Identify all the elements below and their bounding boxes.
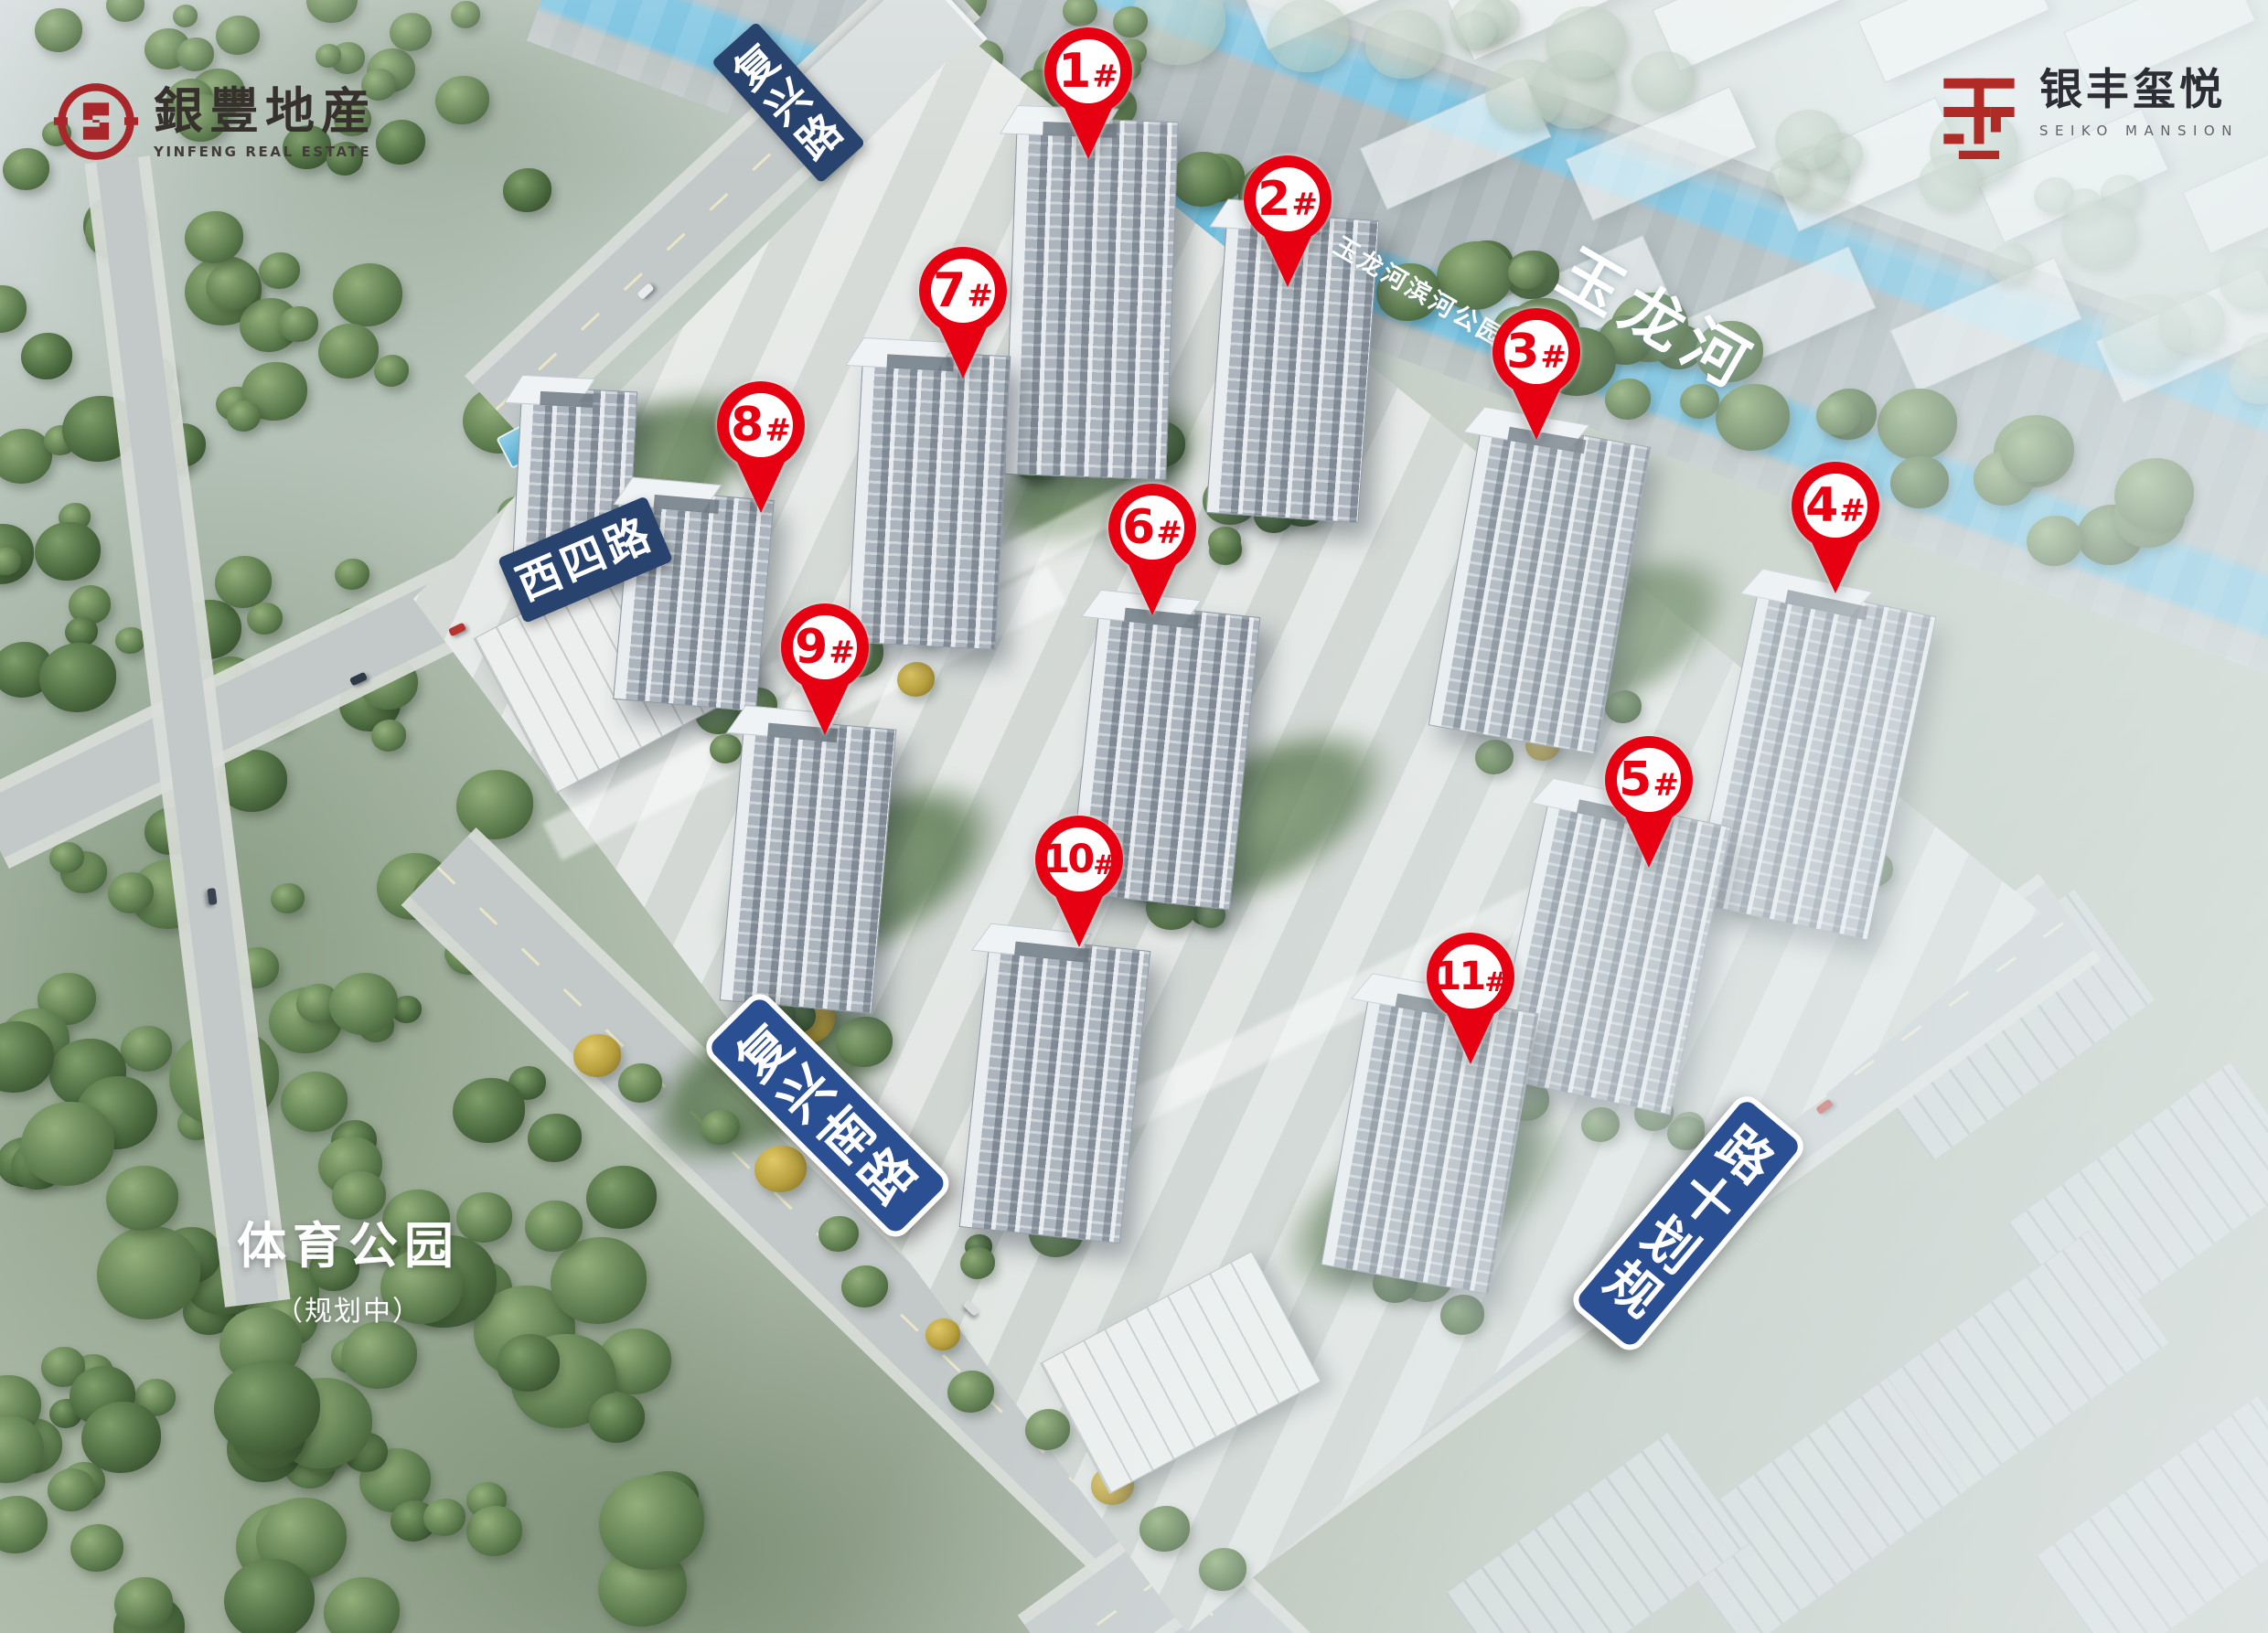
building-10#: [959, 934, 1151, 1244]
building-7#: [848, 348, 1011, 650]
marker-number: 9: [795, 624, 828, 671]
tree: [754, 1146, 807, 1192]
tree: [115, 627, 145, 654]
tree: [1546, 6, 1626, 79]
tree: [185, 211, 243, 263]
building-marker-6#: 6#: [1108, 484, 1196, 623]
tree: [48, 1468, 95, 1511]
tree: [1199, 1548, 1246, 1591]
marker-head: 5#: [1605, 736, 1693, 824]
marker-number: 4: [1805, 482, 1838, 529]
tree: [947, 1371, 994, 1413]
building-1#: [1004, 116, 1179, 480]
tree: [1878, 389, 1956, 460]
building-marker-5#: 5#: [1605, 736, 1693, 875]
tree: [215, 556, 273, 607]
tree: [453, 1078, 524, 1143]
tree: [108, 872, 154, 913]
seiko-mansion-seal-icon: [1937, 69, 2021, 168]
marker-head: 10#: [1035, 816, 1123, 903]
yinfeng-logo-text: 銀豐地産 YINFENG REAL ESTATE: [154, 87, 377, 160]
tree: [1475, 740, 1514, 774]
marker-head: 7#: [919, 247, 1007, 335]
tree: [390, 13, 432, 51]
tree: [106, 1166, 178, 1231]
scene-canvas: 复兴路西四路复兴南路路十划规玉龙河玉龙河滨河公园1#2#3#4#5#6#7#8#…: [0, 0, 2268, 1633]
marker-hash: #: [1092, 59, 1118, 95]
yinfeng-logo-en: YINFENG REAL ESTATE: [154, 144, 377, 160]
tree: [841, 1265, 889, 1307]
tree: [710, 734, 742, 763]
tree: [21, 333, 72, 379]
tree: [70, 1524, 123, 1572]
tree: [374, 355, 410, 387]
tree: [818, 1216, 859, 1252]
tree: [376, 120, 425, 165]
tree: [318, 324, 379, 379]
tree: [173, 5, 198, 27]
tree: [528, 1114, 582, 1162]
tree: [589, 1393, 645, 1443]
tree: [2114, 458, 2195, 530]
tree: [897, 662, 936, 697]
tree: [1440, 1295, 1484, 1335]
tower-roof-core: [540, 391, 593, 408]
tree: [599, 1475, 704, 1570]
tree: [1890, 456, 1949, 509]
tree: [281, 1072, 348, 1132]
tree: [1508, 255, 1546, 289]
tree: [456, 770, 533, 839]
building-marker-3#: 3#: [1492, 308, 1580, 447]
marker-hash: #: [1653, 767, 1679, 804]
tree: [525, 1201, 583, 1252]
tree: [1605, 379, 1651, 420]
tree: [271, 883, 305, 913]
marker-hash: #: [1156, 515, 1182, 551]
building-marker-9#: 9#: [781, 603, 869, 742]
tree: [701, 1110, 740, 1145]
building-marker-10#: 10#: [1035, 816, 1123, 955]
tree: [206, 262, 259, 311]
tree: [573, 1034, 621, 1077]
tree: [586, 1166, 656, 1229]
seiko-mansion-logo-en: SEIKO MANSION: [2039, 123, 2239, 139]
tree: [1581, 1107, 1620, 1142]
tree: [1816, 395, 1860, 434]
building-marker-4#: 4#: [1792, 462, 1879, 601]
tree: [21, 1102, 114, 1186]
tree: [214, 1361, 319, 1456]
aerial-site-plan: 复兴路西四路复兴南路路十划规玉龙河玉龙河滨河公园1#2#3#4#5#6#7#8#…: [0, 0, 2268, 1633]
marker-head: 6#: [1108, 484, 1196, 571]
yinfeng-logo: 銀豐地産 YINFENG REAL ESTATE: [53, 79, 377, 168]
tree: [1025, 1409, 1071, 1450]
tree: [121, 1026, 172, 1072]
marker-head: 8#: [717, 381, 805, 469]
tree: [551, 1237, 647, 1324]
marker-hash: #: [1291, 187, 1318, 223]
tree: [39, 643, 116, 712]
marker-number: 8: [731, 401, 764, 449]
marker-hash: #: [1839, 493, 1866, 529]
building-marker-11#: 11#: [1427, 933, 1514, 1072]
tree: [177, 37, 214, 71]
tree: [1365, 10, 1441, 79]
building-marker-7#: 7#: [919, 247, 1007, 386]
tree: [960, 1247, 996, 1279]
marker-head: 4#: [1792, 462, 1879, 550]
marker-number: 7: [933, 267, 966, 315]
marker-hash: #: [967, 278, 993, 315]
seiko-mansion-logo: 银丰玺悦 SEIKO MANSION: [1937, 69, 2239, 168]
marker-head: 9#: [781, 603, 869, 691]
tree: [1631, 51, 1695, 108]
sports-park-name: 体育公园: [216, 1205, 481, 1277]
marker-head: 1#: [1044, 27, 1132, 115]
marker-number: 11: [1434, 957, 1483, 997]
marker-hash: #: [1540, 339, 1567, 376]
building-marker-2#: 2#: [1244, 155, 1332, 294]
tree: [259, 252, 300, 289]
marker-hash: #: [1484, 966, 1506, 998]
tree: [224, 1559, 315, 1633]
tree: [1988, 243, 2032, 283]
tree: [1139, 1506, 1190, 1551]
building-marker-1#: 1#: [1044, 27, 1132, 166]
tree: [1171, 152, 1232, 207]
tree: [81, 1402, 161, 1473]
marker-number: 6: [1122, 504, 1155, 551]
tree: [1454, 11, 1496, 48]
tree: [371, 720, 406, 752]
building-marker-8#: 8#: [717, 381, 805, 520]
tree: [836, 1017, 893, 1068]
marker-head: 3#: [1492, 308, 1580, 396]
tree: [114, 1577, 173, 1629]
tree: [35, 522, 101, 581]
tree: [466, 1506, 522, 1556]
building-9#: [720, 716, 897, 1013]
tree: [333, 263, 402, 326]
tree: [1775, 110, 1841, 169]
marker-number: 5: [1619, 756, 1652, 804]
tree: [618, 1063, 662, 1103]
tree: [329, 973, 399, 1035]
seiko-mansion-logo-text: 银丰玺悦 SEIKO MANSION: [2039, 69, 2239, 139]
seiko-mansion-logo-cn: 银丰玺悦: [2039, 69, 2239, 112]
yinfeng-logo-cn: 銀豐地産: [154, 87, 377, 136]
marker-hash: #: [765, 412, 791, 449]
tree: [2001, 424, 2065, 482]
marker-number: 2: [1257, 176, 1290, 223]
marker-number: 1: [1058, 48, 1091, 95]
tree: [335, 559, 369, 590]
tree: [1208, 527, 1241, 556]
marker-number: 3: [1506, 328, 1539, 376]
tree: [2061, 199, 2137, 268]
marker-head: 2#: [1244, 155, 1332, 243]
marker-hash: #: [1093, 849, 1115, 881]
yinfeng-seal-icon: [53, 79, 139, 168]
tree: [1267, 0, 1349, 72]
marker-number: 10: [1043, 840, 1092, 880]
tree: [35, 8, 83, 52]
tree: [2158, 292, 2226, 352]
sports-park-label: 体育公园 （规划中）: [216, 1205, 481, 1329]
tree: [423, 1499, 465, 1537]
tree: [1605, 690, 1642, 723]
sports-park-status: （规划中）: [216, 1288, 481, 1329]
tree: [341, 1321, 417, 1390]
tree: [97, 1226, 200, 1319]
marker-head: 11#: [1427, 933, 1514, 1020]
marker-hash: #: [829, 635, 855, 671]
